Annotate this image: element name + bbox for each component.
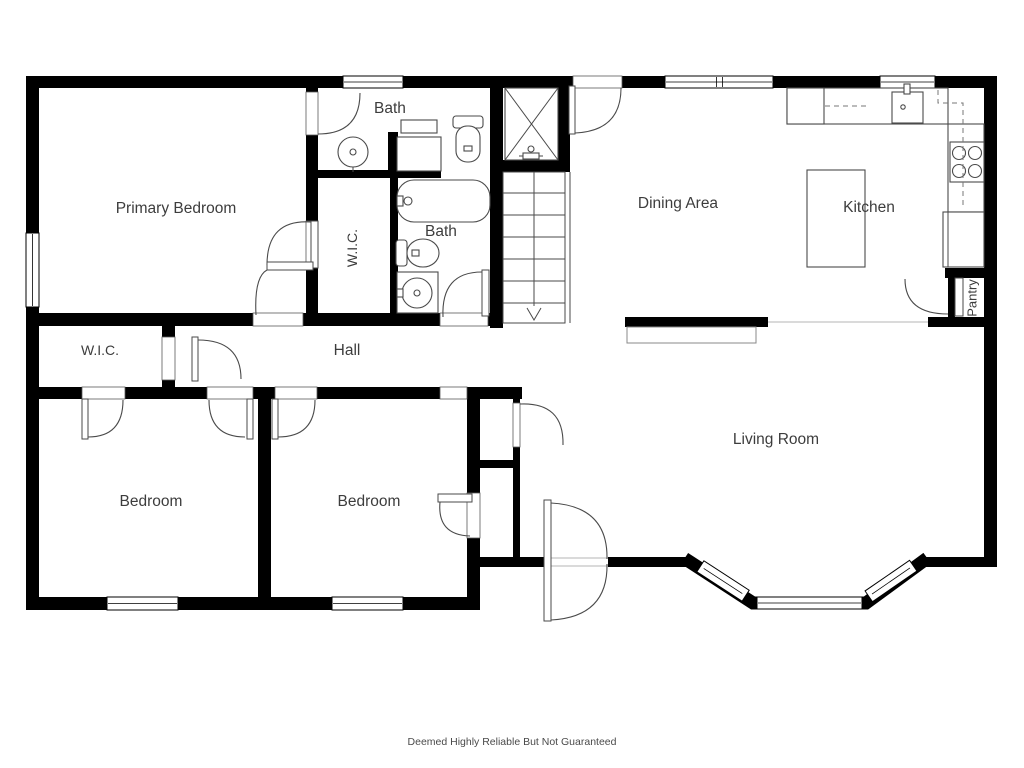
room-label-pantry: Pantry [965, 279, 980, 317]
door-primary-bedroom [256, 262, 313, 315]
window-bedroom-left [107, 597, 178, 610]
door-bedroom-middle [272, 399, 315, 439]
door-closet-bedroom-left [82, 399, 123, 439]
window-bay-left [697, 561, 749, 601]
door-bath-top [318, 93, 360, 134]
door-wic-hall [192, 337, 241, 381]
vanity-icon [397, 120, 441, 171]
room-label-dining-area: Dining Area [638, 195, 719, 212]
door-bedroom-left [209, 399, 253, 439]
disclaimer-text: Deemed Highly Reliable But Not Guarantee… [408, 736, 617, 748]
window-bedroom-middle [332, 597, 403, 610]
kitchen-fixtures [787, 84, 984, 267]
window-bay-center [757, 597, 862, 609]
room-label-bath-top: Bath [374, 100, 406, 117]
toilet-icon [396, 239, 439, 267]
room-label-bedroom-middle: Bedroom [338, 493, 401, 510]
floor-plan-page: Primary Bedroom Bath W.I.C. Bath Dining … [0, 0, 1024, 768]
door-dining-entry [569, 86, 621, 134]
room-label-wic-hall: W.I.C. [81, 342, 119, 358]
bathtub-icon [397, 180, 490, 222]
pedestal-sink-icon [338, 137, 368, 172]
window-primary-left [26, 233, 39, 307]
room-label-bedroom-left: Bedroom [120, 493, 183, 510]
room-label-primary-bedroom: Primary Bedroom [116, 200, 237, 217]
room-label-hall: Hall [334, 342, 361, 359]
door-entry-closet [520, 404, 563, 445]
window-dining-double [665, 76, 773, 88]
dishwasher-icon [943, 212, 984, 267]
room-label-living-room: Living Room [733, 431, 819, 448]
room-label-kitchen: Kitchen [843, 199, 895, 216]
refrigerator-icon [787, 88, 824, 124]
kitchen-island [807, 170, 865, 267]
stairs-down-icon [503, 172, 570, 323]
stove-icon [950, 142, 984, 182]
bath-hall-fixtures [396, 180, 490, 313]
front-door [544, 500, 607, 621]
toilet-icon [453, 116, 483, 162]
door-bath-hall [443, 270, 489, 317]
window-bath-top [343, 76, 403, 88]
shower-icon [505, 88, 558, 160]
sink-icon [397, 272, 438, 313]
bath-top-fixtures [338, 116, 483, 172]
window-bay-right [865, 560, 917, 601]
room-label-bath-hall: Bath [425, 223, 457, 240]
room-label-wic-primary: W.I.C. [344, 229, 360, 267]
floor-plan-canvas: Primary Bedroom Bath W.I.C. Bath Dining … [0, 0, 1024, 768]
